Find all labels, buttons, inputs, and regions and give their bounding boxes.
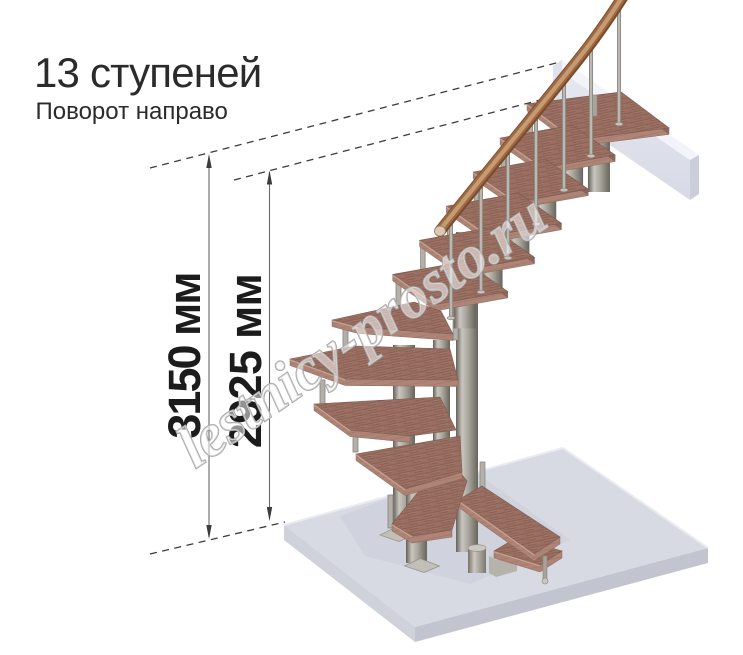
svg-text:Поворот направо: Поворот направо — [36, 98, 228, 125]
svg-text:13 ступеней: 13 ступеней — [34, 49, 261, 96]
